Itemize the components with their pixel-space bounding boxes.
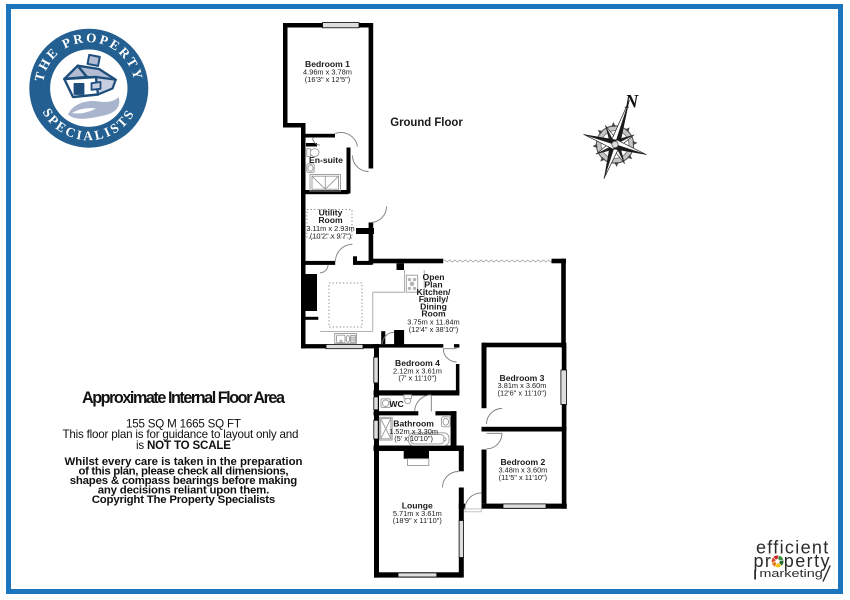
- svg-text:(16'3" x 12'5"): (16'3" x 12'5"): [305, 75, 350, 84]
- svg-text:Copyright The Property Special: Copyright The Property Specialists: [92, 494, 276, 506]
- svg-text:(5' x 10'10"): (5' x 10'10"): [394, 434, 433, 443]
- svg-text:(12'4" x 38'10"): (12'4" x 38'10"): [409, 325, 459, 334]
- svg-text:(10'2" x 9'7"): (10'2" x 9'7"): [310, 231, 351, 240]
- svg-text:(7' x 11'10"): (7' x 11'10"): [398, 374, 436, 383]
- svg-text:WC: WC: [389, 399, 403, 409]
- svg-text:(12'6" x 11'10"): (12'6" x 11'10"): [497, 388, 546, 397]
- svg-text:(18'9" x 11'10"): (18'9" x 11'10"): [393, 516, 442, 525]
- svg-text:N: N: [624, 92, 640, 113]
- svg-text:marketing: marketing: [759, 568, 823, 580]
- svg-text:Approximate Internal Floor Are: Approximate Internal Floor Area: [82, 389, 286, 407]
- svg-text:Ground Floor: Ground Floor: [390, 115, 463, 129]
- svg-text:En-suite: En-suite: [309, 155, 343, 165]
- svg-text:(11'5" x 11'10"): (11'5" x 11'10"): [499, 473, 547, 482]
- svg-text:is NOT TO SCALE: is NOT TO SCALE: [136, 439, 231, 452]
